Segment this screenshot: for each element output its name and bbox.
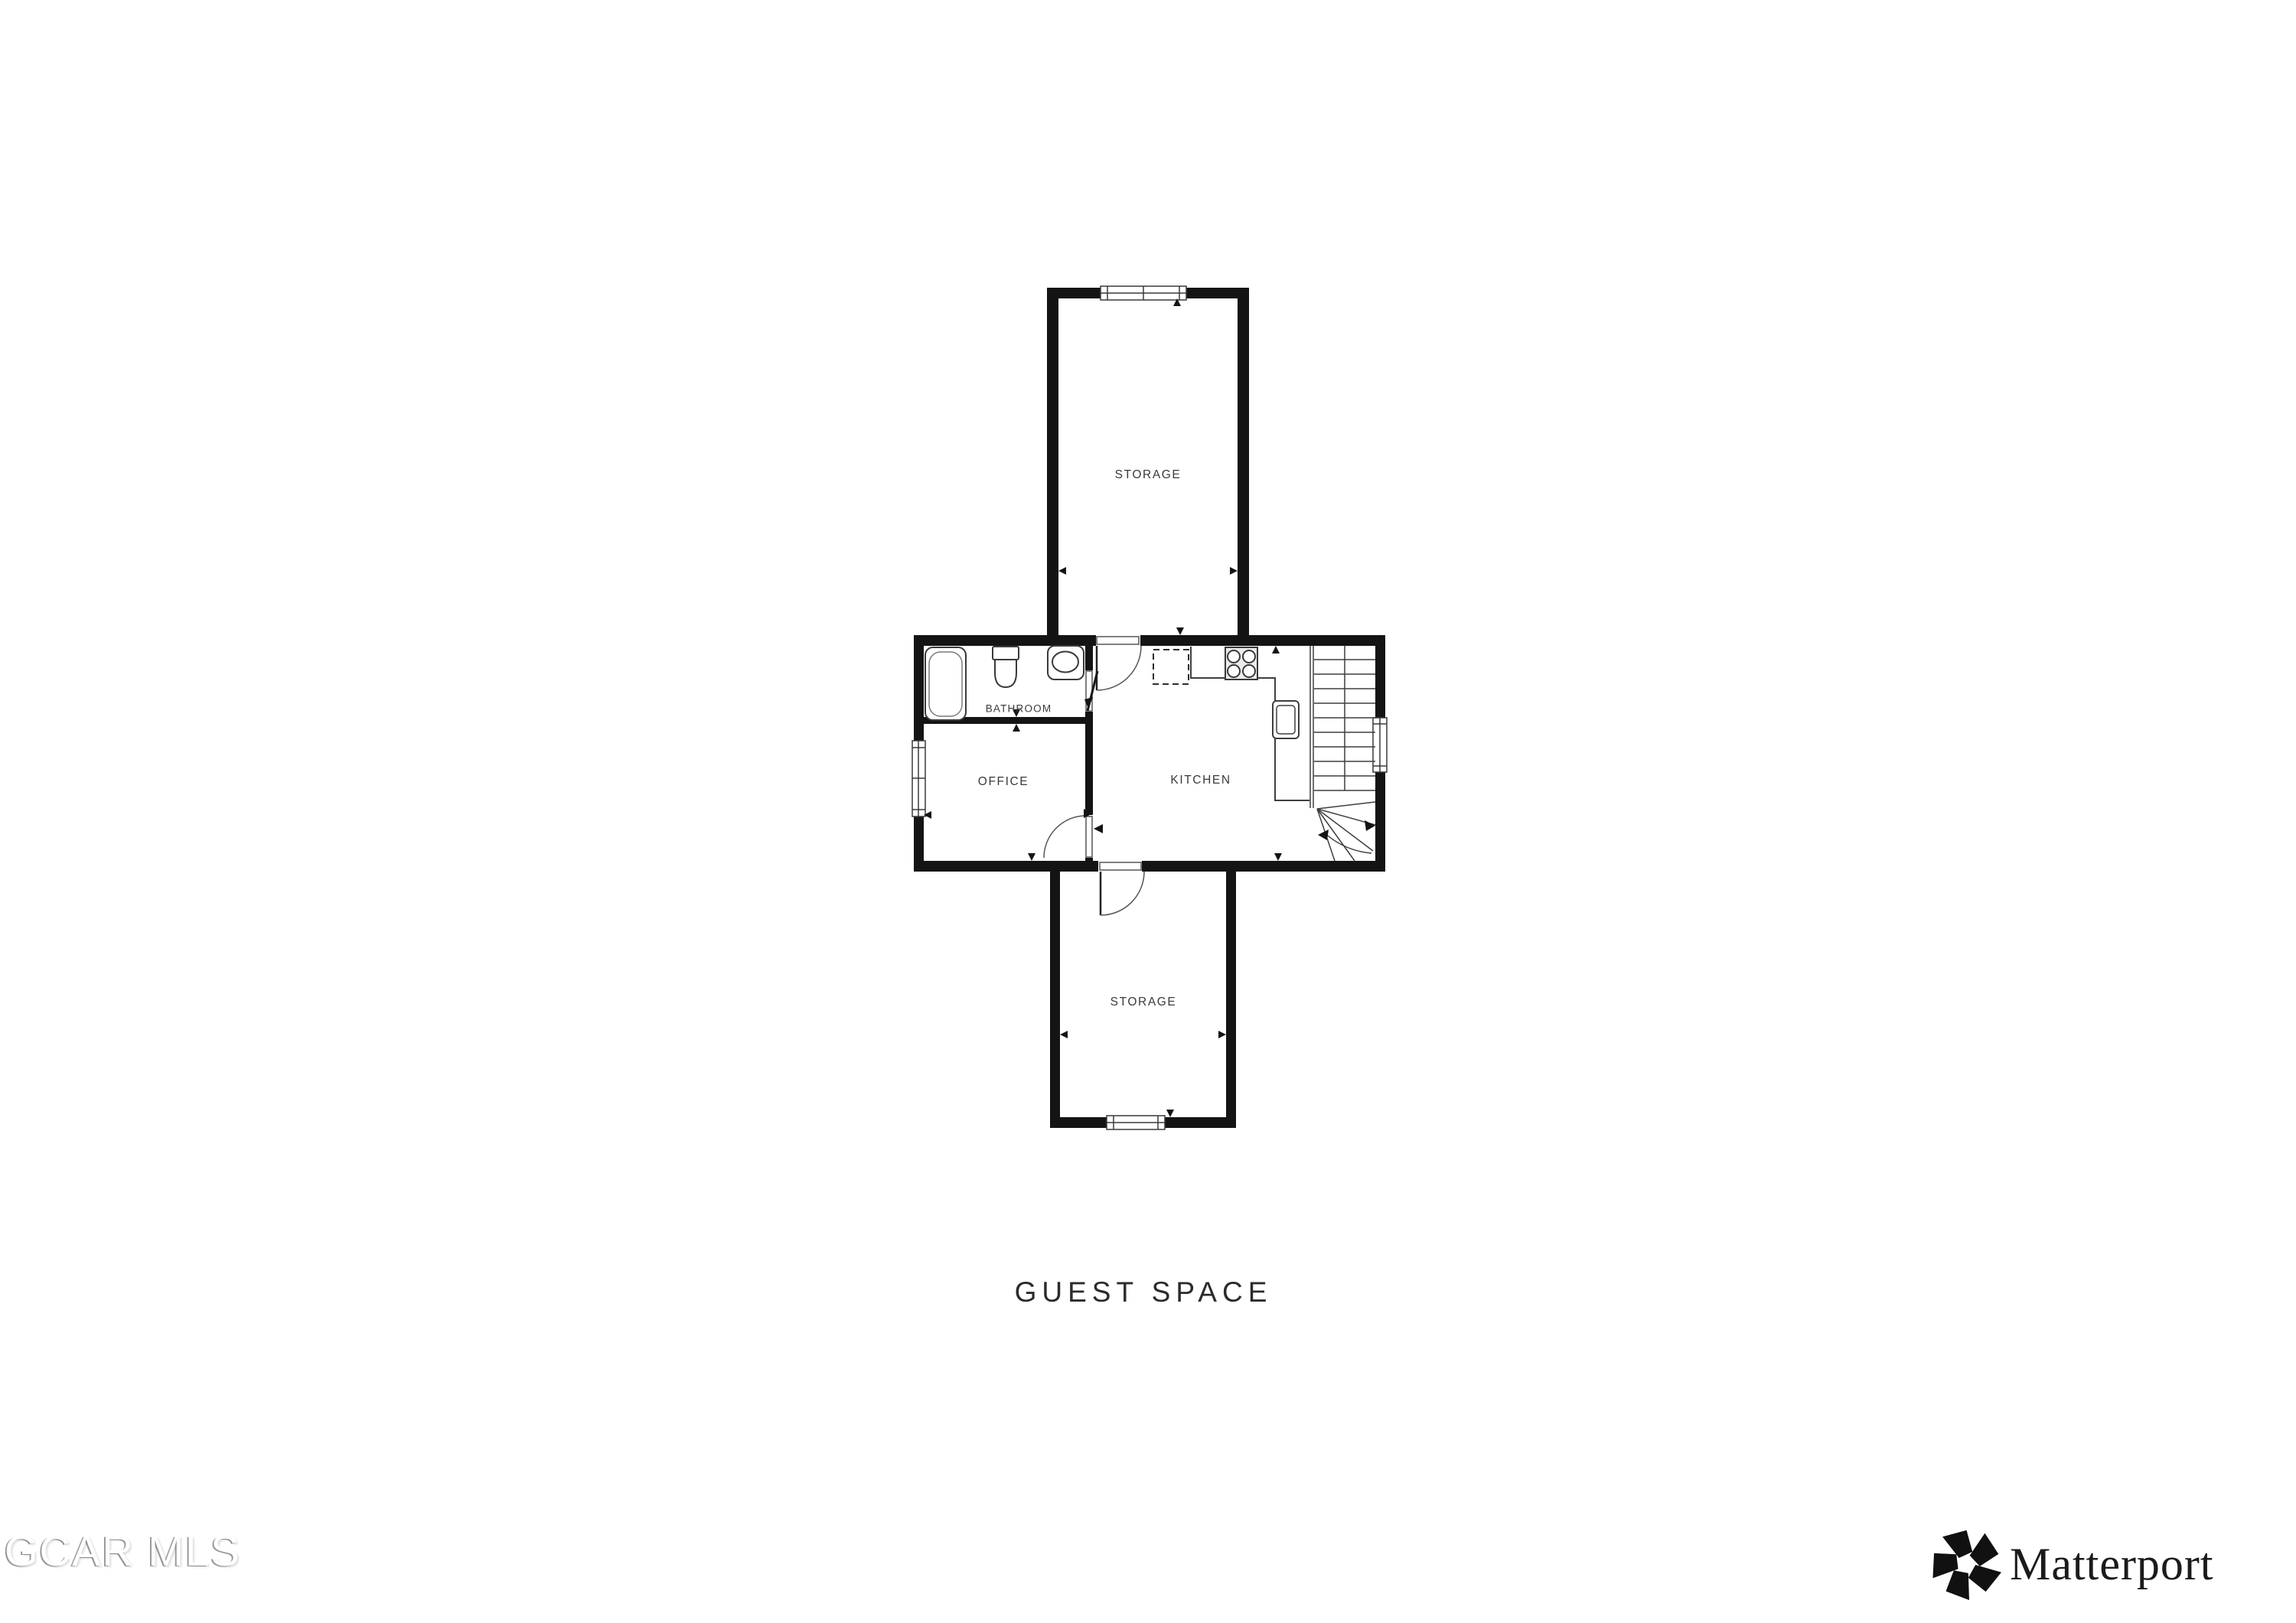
floor-title: GUEST SPACE [1015, 1276, 1273, 1309]
floor-plan-page: STORAGE BATHROOM OFFICE KITCHEN STORAGE … [0, 0, 2296, 1623]
window-bottom-storage [1107, 1116, 1165, 1129]
room-label-storage-bottom: STORAGE [1110, 996, 1177, 1009]
mls-watermark: GCAR MLS [5, 1526, 241, 1576]
bathtub [925, 647, 966, 720]
window-office [912, 741, 925, 816]
door-bathroom [1084, 671, 1097, 711]
kitchen-sink [1273, 701, 1299, 738]
door-bottom-storage [1100, 862, 1144, 915]
matterport-wordmark: Matterport [2010, 1527, 2214, 1601]
door-office [1044, 809, 1103, 858]
bathroom-sink [1048, 646, 1084, 680]
window-staircase [1373, 718, 1387, 772]
room-label-storage-top: STORAGE [1115, 468, 1182, 482]
matterport-pinwheel-icon [1930, 1528, 2002, 1600]
room-label-office: OFFICE [978, 775, 1029, 789]
room-label-kitchen: KITCHEN [1170, 774, 1231, 787]
staircase [1310, 646, 1375, 861]
stove [1225, 647, 1257, 680]
window-top-storage [1101, 286, 1186, 300]
door-kitchen-to-top-storage [1097, 637, 1141, 690]
toilet [993, 647, 1019, 687]
room-label-bathroom: BATHROOM [986, 703, 1052, 715]
floor-plan-drawing [0, 0, 2296, 1623]
appliance-dashed-outline [1153, 650, 1189, 684]
matterport-logo: Matterport [1930, 1527, 2214, 1601]
